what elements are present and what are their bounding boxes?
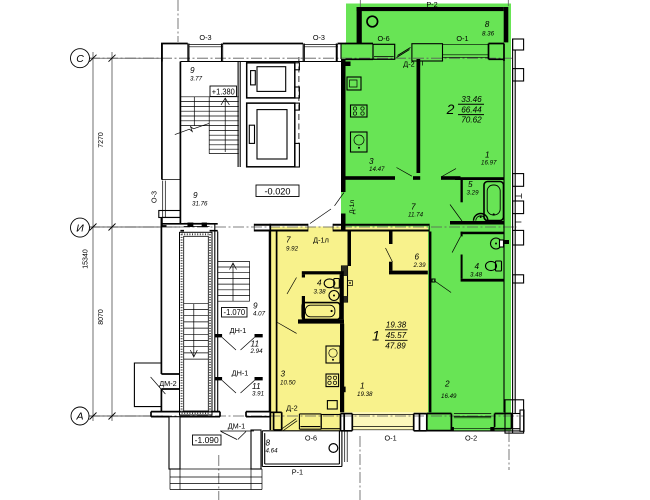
svg-text:16.49: 16.49	[441, 393, 457, 400]
svg-text:3: 3	[281, 370, 286, 379]
svg-text:3.48: 3.48	[470, 272, 483, 279]
svg-text:9: 9	[253, 302, 258, 311]
svg-text:33.46: 33.46	[461, 95, 482, 104]
svg-text:7270: 7270	[98, 132, 105, 148]
svg-text:9.92: 9.92	[286, 246, 299, 253]
svg-text:О-1: О-1	[456, 34, 468, 43]
svg-text:3.29: 3.29	[467, 190, 480, 197]
svg-text:7: 7	[411, 203, 416, 212]
svg-text:14.47: 14.47	[369, 166, 385, 173]
svg-text:ДМ-1: ДМ-1	[228, 422, 246, 431]
svg-text:О-6: О-6	[305, 434, 317, 443]
svg-text:8070: 8070	[98, 309, 105, 325]
svg-text:15340: 15340	[83, 249, 90, 269]
svg-text:1: 1	[485, 151, 490, 160]
svg-text:С: С	[76, 53, 84, 65]
svg-text:+1.380: +1.380	[212, 87, 235, 97]
svg-text:70.62: 70.62	[461, 116, 482, 125]
svg-text:6: 6	[415, 253, 420, 262]
svg-text:-0.020: -0.020	[265, 187, 291, 197]
svg-text:8: 8	[266, 439, 271, 448]
svg-text:45.57: 45.57	[386, 331, 407, 340]
svg-text:ДН-1: ДН-1	[230, 326, 247, 335]
svg-text:4: 4	[317, 279, 322, 288]
svg-text:8: 8	[485, 20, 490, 29]
svg-text:О-3: О-3	[199, 33, 211, 42]
svg-text:16.97: 16.97	[481, 160, 497, 167]
svg-text:Р-2: Р-2	[426, 0, 437, 9]
svg-text:О-1: О-1	[385, 434, 397, 443]
svg-text:4.07: 4.07	[253, 311, 266, 318]
svg-text:О-2: О-2	[465, 434, 477, 443]
svg-text:О-3: О-3	[150, 191, 159, 203]
svg-text:66.44: 66.44	[461, 105, 482, 114]
svg-text:31.76: 31.76	[192, 201, 208, 208]
svg-text:11.74: 11.74	[408, 212, 424, 219]
svg-text:Д-1л: Д-1л	[349, 200, 356, 214]
svg-text:2: 2	[446, 101, 455, 117]
svg-text:Д-2: Д-2	[286, 404, 297, 413]
svg-text:1: 1	[360, 382, 365, 391]
svg-text:О-6: О-6	[378, 34, 390, 43]
svg-text:3.91: 3.91	[252, 391, 264, 398]
svg-text:3.77: 3.77	[190, 76, 203, 83]
svg-text:19.38: 19.38	[357, 391, 373, 398]
svg-text:2: 2	[444, 380, 450, 389]
svg-text:47.89: 47.89	[385, 342, 406, 351]
svg-text:9: 9	[193, 191, 198, 200]
svg-text:-1.090: -1.090	[195, 435, 219, 445]
svg-text:8.36: 8.36	[482, 31, 495, 38]
svg-text:2.94: 2.94	[250, 348, 264, 355]
svg-text:Р-1: Р-1	[292, 468, 303, 477]
svg-text:5: 5	[468, 180, 473, 189]
svg-text:2.39: 2.39	[413, 262, 427, 269]
svg-text:Д-2: Д-2	[403, 60, 414, 69]
svg-text:3: 3	[369, 157, 374, 166]
svg-text:4.64: 4.64	[266, 448, 279, 455]
svg-text:9: 9	[190, 66, 195, 75]
svg-text:3.38: 3.38	[314, 289, 327, 296]
svg-text:10.50: 10.50	[280, 380, 296, 387]
svg-text:А: А	[75, 411, 83, 423]
svg-text:И: И	[76, 222, 84, 234]
svg-text:ДМ-2: ДМ-2	[159, 379, 177, 388]
svg-text:Д-1л: Д-1л	[313, 236, 329, 245]
svg-text:О-3: О-3	[313, 33, 325, 42]
svg-text:7: 7	[286, 236, 291, 245]
svg-text:19.38: 19.38	[386, 321, 407, 330]
svg-text:4: 4	[475, 262, 480, 271]
svg-text:ДН-1: ДН-1	[232, 369, 249, 378]
svg-text:1: 1	[372, 328, 380, 344]
svg-text:-1.070: -1.070	[224, 308, 246, 317]
